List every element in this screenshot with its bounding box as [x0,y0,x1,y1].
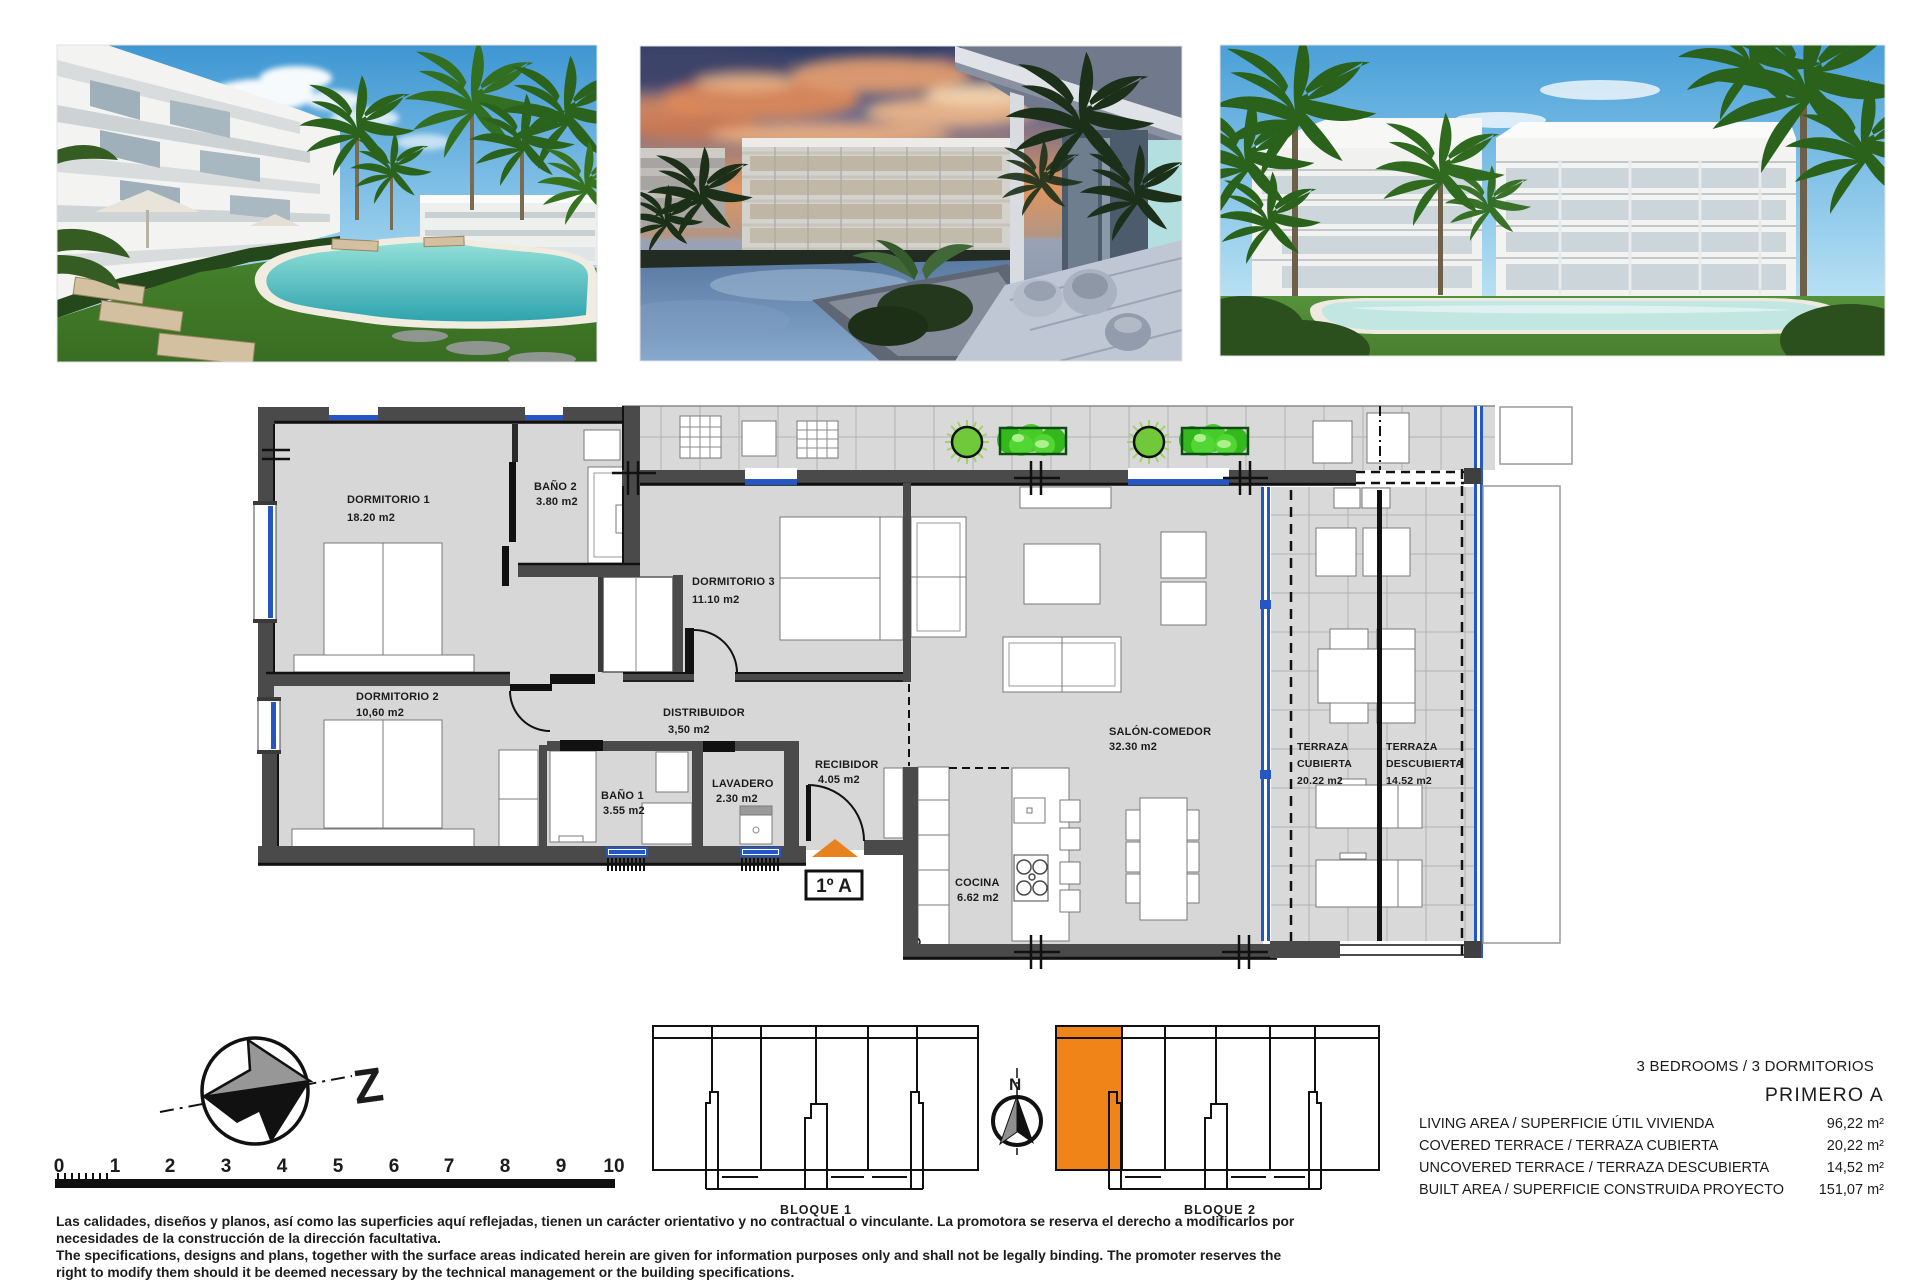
svg-text:DORMITORIO 2: DORMITORIO 2 [356,691,439,703]
svg-text:3: 3 [221,1156,232,1177]
svg-text:BUILT AREA / SUPERFICIE CONSTR: BUILT AREA / SUPERFICIE CONSTRUIDA PROYE… [1419,1182,1784,1198]
svg-text:11.10 m2: 11.10 m2 [692,594,739,606]
svg-text:151,07 m²: 151,07 m² [1819,1182,1884,1198]
svg-text:10,60 m2: 10,60 m2 [356,707,404,719]
svg-text:3.55 m2: 3.55 m2 [603,805,645,817]
svg-text:20,22 m²: 20,22 m² [1827,1138,1884,1154]
svg-text:7: 7 [444,1156,455,1177]
svg-text:3 BEDROOMS / 3 DORMITORIOS: 3 BEDROOMS / 3 DORMITORIOS [1637,1058,1874,1075]
svg-text:4: 4 [277,1156,288,1177]
svg-text:18.20 m2: 18.20 m2 [347,512,395,524]
svg-text:3,50 m2: 3,50 m2 [668,724,710,736]
svg-text:CUBIERTA: CUBIERTA [1297,758,1352,770]
svg-text:96,22 m²: 96,22 m² [1827,1116,1884,1132]
svg-text:14,52 m²: 14,52 m² [1827,1160,1884,1176]
svg-text:DISTRIBUIDOR: DISTRIBUIDOR [663,707,745,719]
svg-text:right to modify them should it: right to modify them should it be deemed… [56,1265,794,1280]
svg-text:BAÑO 1: BAÑO 1 [601,789,644,802]
svg-text:LIVING AREA / SUPERFICIE ÚTIL: LIVING AREA / SUPERFICIE ÚTIL VIVIENDA [1419,1115,1715,1132]
svg-text:SALÓN-COMEDOR: SALÓN-COMEDOR [1109,725,1211,738]
svg-text:1º A: 1º A [816,876,852,897]
svg-text:20.22 m2: 20.22 m2 [1297,775,1343,787]
svg-text:6: 6 [389,1156,400,1177]
svg-text:10: 10 [603,1156,624,1177]
svg-text:LAVADERO: LAVADERO [712,778,774,790]
svg-text:BAÑO 2: BAÑO 2 [534,480,577,493]
svg-text:UNCOVERED TERRACE / TERRAZA DE: UNCOVERED TERRACE / TERRAZA DESCUBIERTA [1419,1160,1770,1176]
svg-text:2: 2 [165,1156,176,1177]
svg-text:COVERED TERRACE / TERRAZA CUBI: COVERED TERRACE / TERRAZA CUBIERTA [1419,1138,1719,1154]
svg-text:9: 9 [556,1156,567,1177]
svg-text:N: N [1009,1075,1021,1094]
svg-text:TERRAZA: TERRAZA [1386,741,1438,753]
svg-text:4.05 m2: 4.05 m2 [818,774,860,786]
svg-text:necesidades de la construcción: necesidades de la construcción de la dir… [56,1231,441,1246]
svg-text:6.62 m2: 6.62 m2 [957,892,999,904]
svg-text:RECIBIDOR: RECIBIDOR [815,759,879,771]
svg-text:2.30 m2: 2.30 m2 [716,793,758,805]
svg-text:The specifications, designs an: The specifications, designs and plans, t… [56,1248,1281,1263]
svg-text:1: 1 [110,1156,121,1177]
svg-text:8: 8 [500,1156,511,1177]
svg-text:PRIMERO A: PRIMERO A [1765,1084,1884,1106]
svg-text:DORMITORIO 3: DORMITORIO 3 [692,576,775,588]
svg-text:DESCUBIERTA: DESCUBIERTA [1386,758,1463,770]
svg-text:COCINA: COCINA [955,877,1000,889]
svg-text:14.52 m2: 14.52 m2 [1386,775,1432,787]
svg-text:32.30 m2: 32.30 m2 [1109,741,1157,753]
svg-text:3.80 m2: 3.80 m2 [536,496,578,508]
svg-text:DORMITORIO 1: DORMITORIO 1 [347,494,430,506]
svg-text:5: 5 [333,1156,344,1177]
svg-text:TERRAZA: TERRAZA [1297,741,1349,753]
svg-text:Las calidades, diseños y plano: Las calidades, diseños y planos, así com… [56,1214,1295,1229]
